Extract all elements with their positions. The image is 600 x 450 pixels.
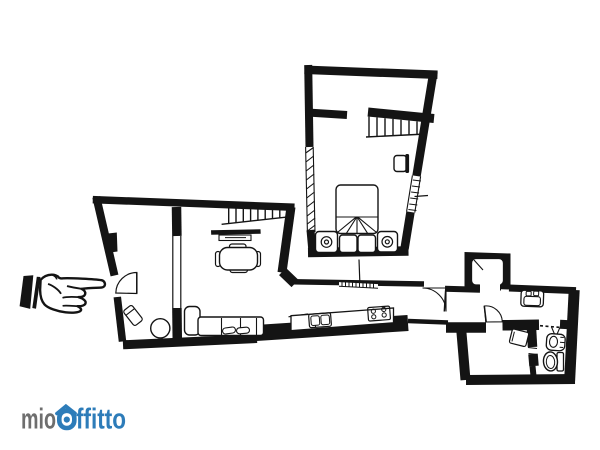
svg-text:mio: mio — [21, 404, 56, 436]
svg-text:ffitto: ffitto — [76, 404, 126, 436]
